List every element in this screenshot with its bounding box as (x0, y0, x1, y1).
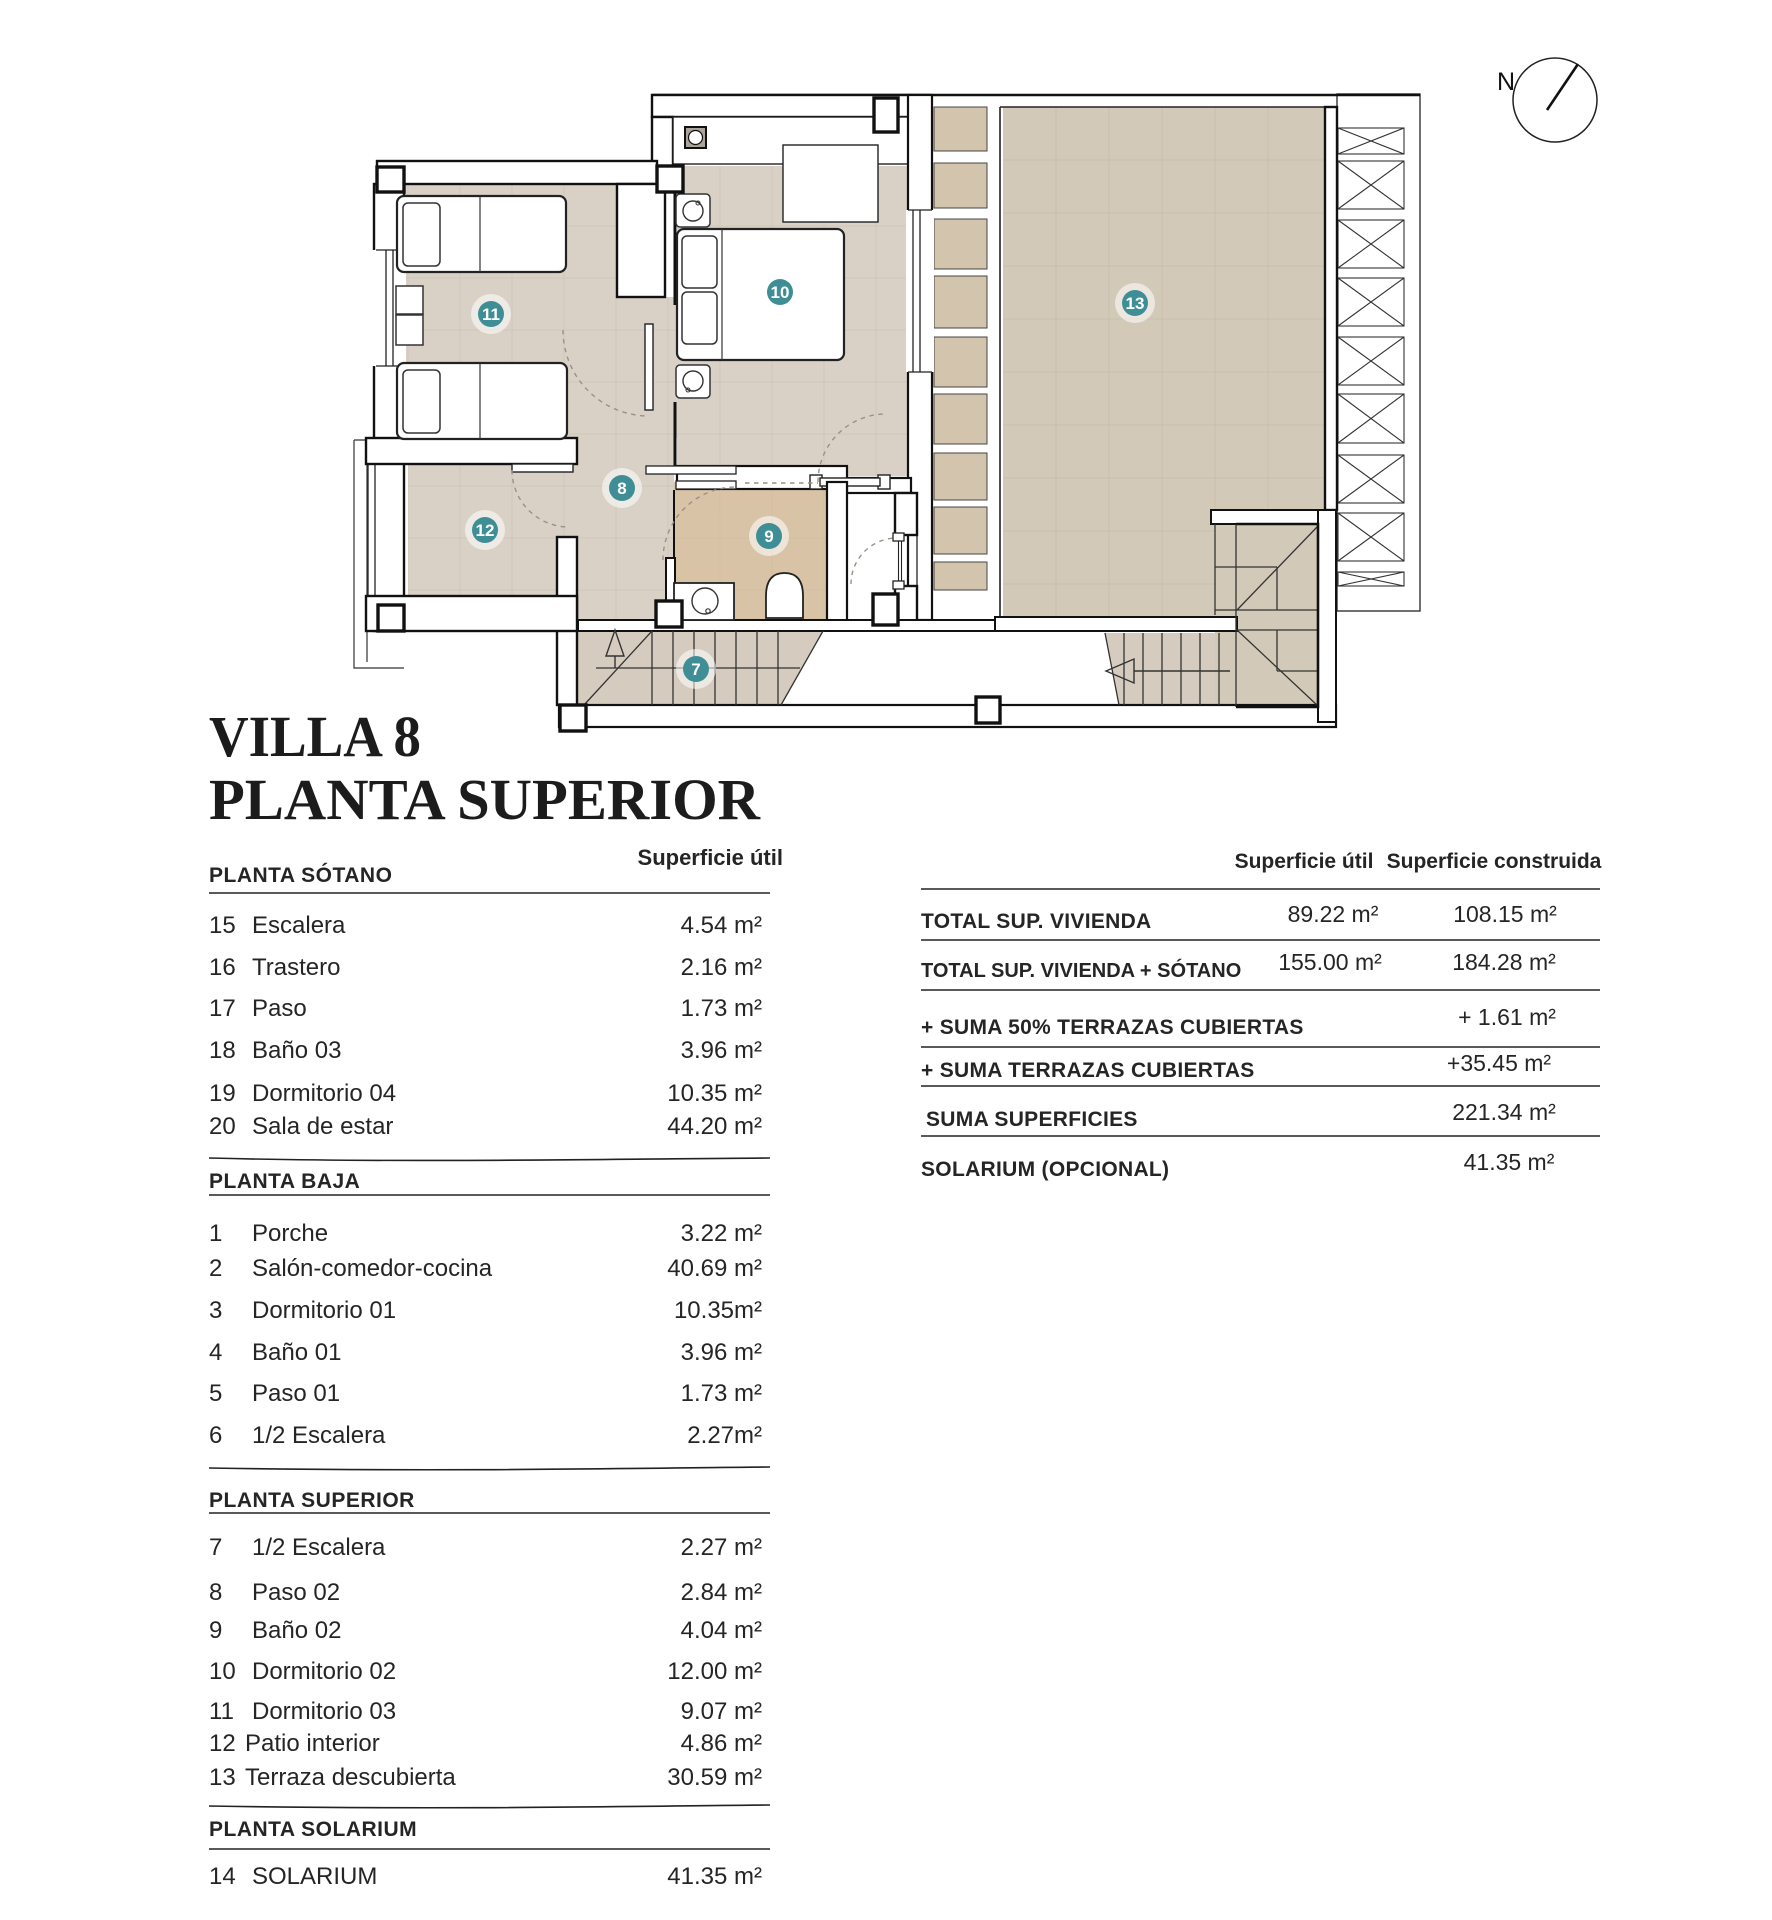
svg-text:Sala de estar: Sala de estar (252, 1113, 393, 1140)
svg-text:+ 1.61 m²: + 1.61 m² (1458, 1004, 1556, 1030)
svg-text:13: 13 (1126, 294, 1145, 313)
svg-text:3.96 m²: 3.96 m² (681, 1037, 762, 1064)
svg-text:Salón-comedor-cocina: Salón-comedor-cocina (252, 1255, 493, 1282)
svg-text:8: 8 (617, 479, 626, 498)
svg-text:2.84 m²: 2.84 m² (681, 1579, 762, 1606)
svg-text:41.35 m²: 41.35 m² (667, 1863, 762, 1890)
svg-text:10.35m²: 10.35m² (674, 1297, 762, 1324)
svg-text:12: 12 (476, 521, 495, 540)
svg-text:PLANTA SOLARIUM: PLANTA SOLARIUM (209, 1818, 417, 1841)
svg-text:PLANTA SUPERIOR: PLANTA SUPERIOR (209, 1489, 415, 1512)
svg-text:PLANTA BAJA: PLANTA BAJA (209, 1170, 360, 1193)
svg-text:4.86 m²: 4.86 m² (681, 1730, 762, 1757)
svg-text:16: 16 (209, 954, 236, 981)
svg-text:184.28 m²: 184.28 m² (1452, 949, 1556, 975)
svg-text:TOTAL SUP. VIVIENDA: TOTAL SUP. VIVIENDA (921, 910, 1152, 933)
svg-text:Porche: Porche (252, 1220, 328, 1247)
svg-text:4.54 m²: 4.54 m² (681, 912, 762, 939)
svg-text:7: 7 (209, 1534, 222, 1561)
svg-text:3.96 m²: 3.96 m² (681, 1339, 762, 1366)
svg-text:11: 11 (209, 1698, 234, 1725)
svg-text:2: 2 (209, 1255, 222, 1282)
svg-text:+ SUMA TERRAZAS CUBIERTAS: + SUMA TERRAZAS CUBIERTAS (921, 1059, 1255, 1082)
svg-text:40.69 m²: 40.69 m² (667, 1255, 762, 1282)
svg-text:Baño 01: Baño 01 (252, 1339, 341, 1366)
svg-text:VILLA 8: VILLA 8 (209, 704, 421, 769)
svg-text:12.00 m²: 12.00 m² (667, 1658, 762, 1685)
svg-text:4.04 m²: 4.04 m² (681, 1617, 762, 1644)
svg-text:Dormitorio 01: Dormitorio 01 (252, 1297, 396, 1324)
svg-text:12: 12 (209, 1730, 236, 1757)
svg-text:3.22 m²: 3.22 m² (681, 1220, 762, 1247)
svg-text:6: 6 (209, 1422, 222, 1449)
svg-text:15: 15 (209, 912, 236, 939)
svg-text:PLANTA SUPERIOR: PLANTA SUPERIOR (209, 767, 761, 832)
svg-text:2.27 m²: 2.27 m² (681, 1534, 762, 1561)
svg-text:30.59 m²: 30.59 m² (667, 1764, 762, 1791)
svg-text:PLANTA SÓTANO: PLANTA SÓTANO (209, 863, 392, 887)
svg-text:11: 11 (482, 305, 500, 324)
svg-text:Patio interior: Patio interior (245, 1730, 380, 1757)
svg-text:1/2 Escalera: 1/2 Escalera (252, 1422, 386, 1449)
svg-text:4: 4 (209, 1339, 222, 1366)
svg-text:14: 14 (209, 1863, 236, 1890)
svg-text:SOLARIUM (OPCIONAL): SOLARIUM (OPCIONAL) (921, 1158, 1169, 1181)
svg-text:44.20 m²: 44.20 m² (667, 1113, 762, 1140)
svg-text:Baño 03: Baño 03 (252, 1037, 341, 1064)
svg-text:155.00 m²: 155.00 m² (1278, 949, 1382, 975)
svg-text:TOTAL SUP. VIVIENDA + SÓTANO: TOTAL SUP. VIVIENDA + SÓTANO (921, 958, 1241, 982)
svg-text:17: 17 (209, 995, 236, 1022)
svg-text:10: 10 (771, 283, 790, 302)
svg-text:SUMA SUPERFICIES: SUMA SUPERFICIES (926, 1108, 1138, 1131)
svg-text:19: 19 (209, 1080, 236, 1107)
svg-text:1/2 Escalera: 1/2 Escalera (252, 1534, 386, 1561)
svg-text:Escalera: Escalera (252, 912, 346, 939)
svg-text:Terraza descubierta: Terraza descubierta (245, 1764, 456, 1791)
svg-text:+ SUMA 50% TERRAZAS CUBIERTAS: + SUMA 50% TERRAZAS CUBIERTAS (921, 1016, 1304, 1039)
svg-text:SOLARIUM: SOLARIUM (252, 1863, 377, 1890)
svg-text:10.35 m²: 10.35 m² (667, 1080, 762, 1107)
svg-text:Baño 02: Baño 02 (252, 1617, 341, 1644)
svg-text:2.27m²: 2.27m² (687, 1422, 762, 1449)
svg-text:5: 5 (209, 1380, 222, 1407)
svg-text:Paso: Paso (252, 995, 307, 1022)
svg-text:10: 10 (209, 1658, 236, 1685)
svg-text:Superficie útil: Superficie útil (638, 845, 783, 870)
svg-text:1.73 m²: 1.73 m² (681, 995, 762, 1022)
svg-text:3: 3 (209, 1297, 222, 1324)
svg-text:Trastero: Trastero (252, 954, 340, 981)
svg-text:Dormitorio 04: Dormitorio 04 (252, 1080, 396, 1107)
svg-text:Superficie construida: Superficie construida (1387, 850, 1602, 873)
svg-text:221.34 m²: 221.34 m² (1452, 1099, 1556, 1125)
svg-text:9: 9 (209, 1617, 222, 1644)
svg-text:7: 7 (691, 660, 700, 679)
svg-text:N: N (1497, 68, 1515, 96)
svg-text:Dormitorio 03: Dormitorio 03 (252, 1698, 396, 1725)
svg-text:18: 18 (209, 1037, 236, 1064)
svg-text:Paso 01: Paso 01 (252, 1380, 340, 1407)
svg-text:41.35 m²: 41.35 m² (1464, 1149, 1555, 1175)
svg-text:2.16 m²: 2.16 m² (681, 954, 762, 981)
svg-text:Dormitorio 02: Dormitorio 02 (252, 1658, 396, 1685)
svg-text:+35.45 m²: +35.45 m² (1447, 1050, 1552, 1076)
svg-text:89.22 m²: 89.22 m² (1288, 901, 1379, 927)
svg-text:108.15 m²: 108.15 m² (1453, 901, 1557, 927)
svg-text:8: 8 (209, 1579, 222, 1606)
svg-text:Paso 02: Paso 02 (252, 1579, 340, 1606)
svg-text:20: 20 (209, 1113, 236, 1140)
svg-text:1: 1 (209, 1220, 222, 1247)
svg-text:9: 9 (764, 527, 773, 546)
svg-text:13: 13 (209, 1764, 236, 1791)
svg-text:1.73 m²: 1.73 m² (681, 1380, 762, 1407)
svg-text:Superficie útil: Superficie útil (1235, 850, 1374, 873)
svg-text:9.07 m²: 9.07 m² (681, 1698, 762, 1725)
